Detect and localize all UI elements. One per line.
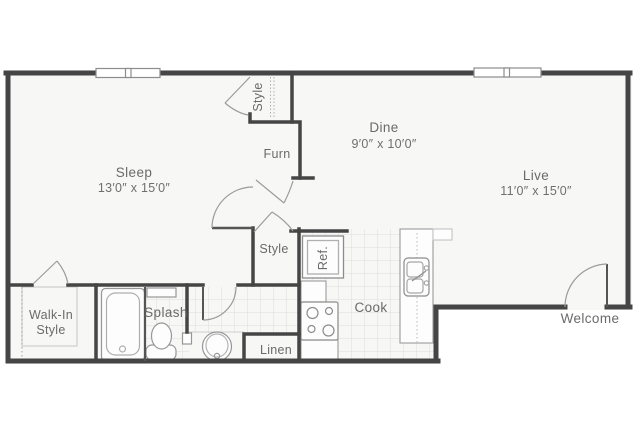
window-top-right [474, 68, 541, 77]
sleep-dims: 13′0″ x 15′0″ [98, 181, 171, 195]
kitchen-label: Cook [354, 300, 387, 315]
dine-dims: 9′0″ x 10′0″ [351, 137, 416, 151]
live-label: Live [523, 168, 549, 183]
stove [301, 302, 338, 340]
top-closet-label: Style [251, 82, 265, 111]
bathroom-label: Splash [144, 305, 188, 320]
floor-plan-svg: Sleep 13′0″ x 15′0″ Dine 9′0″ x 10′0″ Li… [0, 0, 640, 440]
entry-welcome-label: Welcome [561, 311, 620, 326]
sleep-label: Sleep [116, 165, 153, 180]
dine-label: Dine [369, 120, 398, 135]
live-dims: 11′0″ x 15′0″ [500, 184, 572, 198]
window-top-left [96, 69, 160, 78]
bathtub [102, 289, 145, 361]
refrigerator-label: Ref. [316, 246, 330, 270]
floor-plan-page: Sleep 13′0″ x 15′0″ Dine 9′0″ x 10′0″ Li… [0, 0, 640, 440]
kitchen-island-double-sink [404, 258, 429, 296]
hall-closet-label: Style [259, 242, 288, 256]
linen-label: Linen [260, 343, 292, 357]
furnace-label: Furn [264, 147, 291, 161]
walk-in-label-line2: Style [36, 323, 65, 337]
walk-in-label-line1: Walk-In [29, 308, 73, 322]
